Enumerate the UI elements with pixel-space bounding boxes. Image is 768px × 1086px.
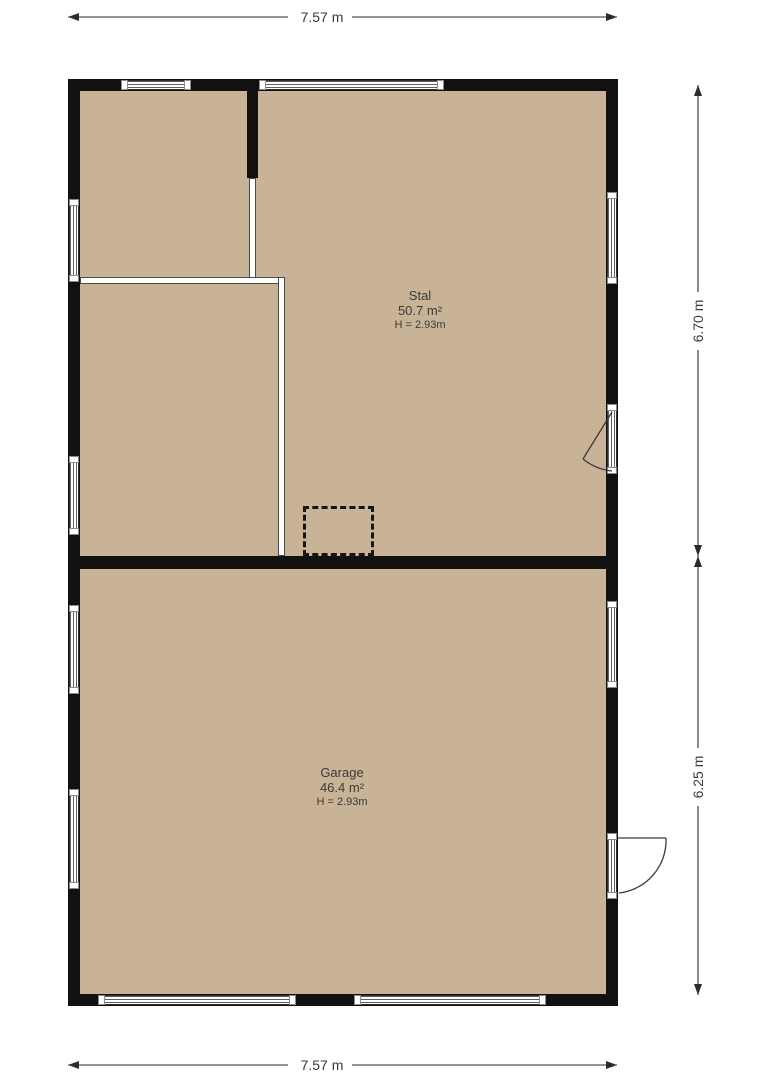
room-area-stal: 50.7 m²	[394, 303, 445, 319]
door-opening-stal	[607, 405, 617, 473]
window-left-3	[69, 606, 79, 693]
room-height-stal: H = 2.93m	[394, 319, 445, 332]
room-label-garage: Garage 46.4 m² H = 2.93m	[316, 765, 367, 809]
window-right-2	[607, 602, 617, 687]
room-name-stal: Stal	[394, 288, 445, 303]
window-bottom-2	[355, 995, 545, 1005]
door-swing-garage	[617, 838, 666, 893]
thin-wall-innerroom-right	[278, 277, 285, 556]
room-area-garage: 46.4 m²	[316, 780, 367, 796]
dimension-bottom-label: 7.57 m	[298, 1057, 347, 1073]
floorplan-canvas: Stal 50.7 m² H = 2.93m Garage 46.4 m² H …	[0, 0, 768, 1086]
wall-partition-stub	[247, 91, 258, 178]
door-opening-garage	[607, 834, 617, 898]
window-left-4	[69, 790, 79, 888]
window-left-1	[69, 200, 79, 281]
window-top-2	[260, 80, 443, 90]
room-height-garage: H = 2.93m	[316, 796, 367, 809]
window-top-1	[122, 80, 190, 90]
room-name-garage: Garage	[316, 765, 367, 780]
room-label-stal: Stal 50.7 m² H = 2.93m	[394, 288, 445, 332]
thin-wall-partition-lower	[249, 178, 256, 278]
dimension-right-upper-label: 6.70 m	[690, 297, 706, 346]
dimension-right-lower-label: 6.25 m	[690, 753, 706, 802]
window-bottom-1	[99, 995, 295, 1005]
window-left-2	[69, 457, 79, 534]
wall-divider	[68, 556, 618, 569]
window-right-1	[607, 193, 617, 283]
dashed-hatch-box	[303, 506, 374, 556]
thin-wall-innerroom-top	[80, 277, 285, 284]
dimension-top-label: 7.57 m	[298, 9, 347, 25]
